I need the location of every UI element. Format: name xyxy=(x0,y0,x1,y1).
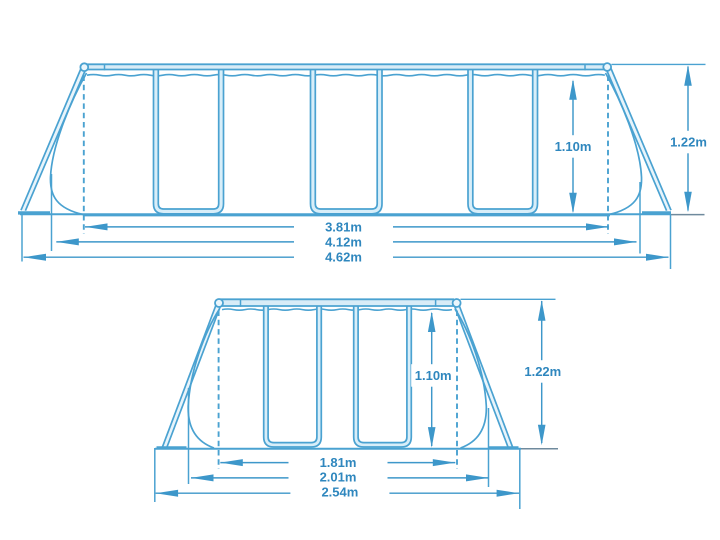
svg-text:1.22m: 1.22m xyxy=(670,135,707,150)
svg-text:1.22m: 1.22m xyxy=(524,364,561,379)
svg-text:2.54m: 2.54m xyxy=(321,484,358,499)
svg-text:1.10m: 1.10m xyxy=(555,139,592,154)
svg-text:1.10m: 1.10m xyxy=(415,368,452,383)
svg-text:2.01m: 2.01m xyxy=(320,470,357,485)
svg-text:1.81m: 1.81m xyxy=(320,455,357,470)
svg-text:4.62m: 4.62m xyxy=(325,249,362,264)
svg-text:3.81m: 3.81m xyxy=(325,220,362,235)
svg-text:4.12m: 4.12m xyxy=(325,234,362,249)
